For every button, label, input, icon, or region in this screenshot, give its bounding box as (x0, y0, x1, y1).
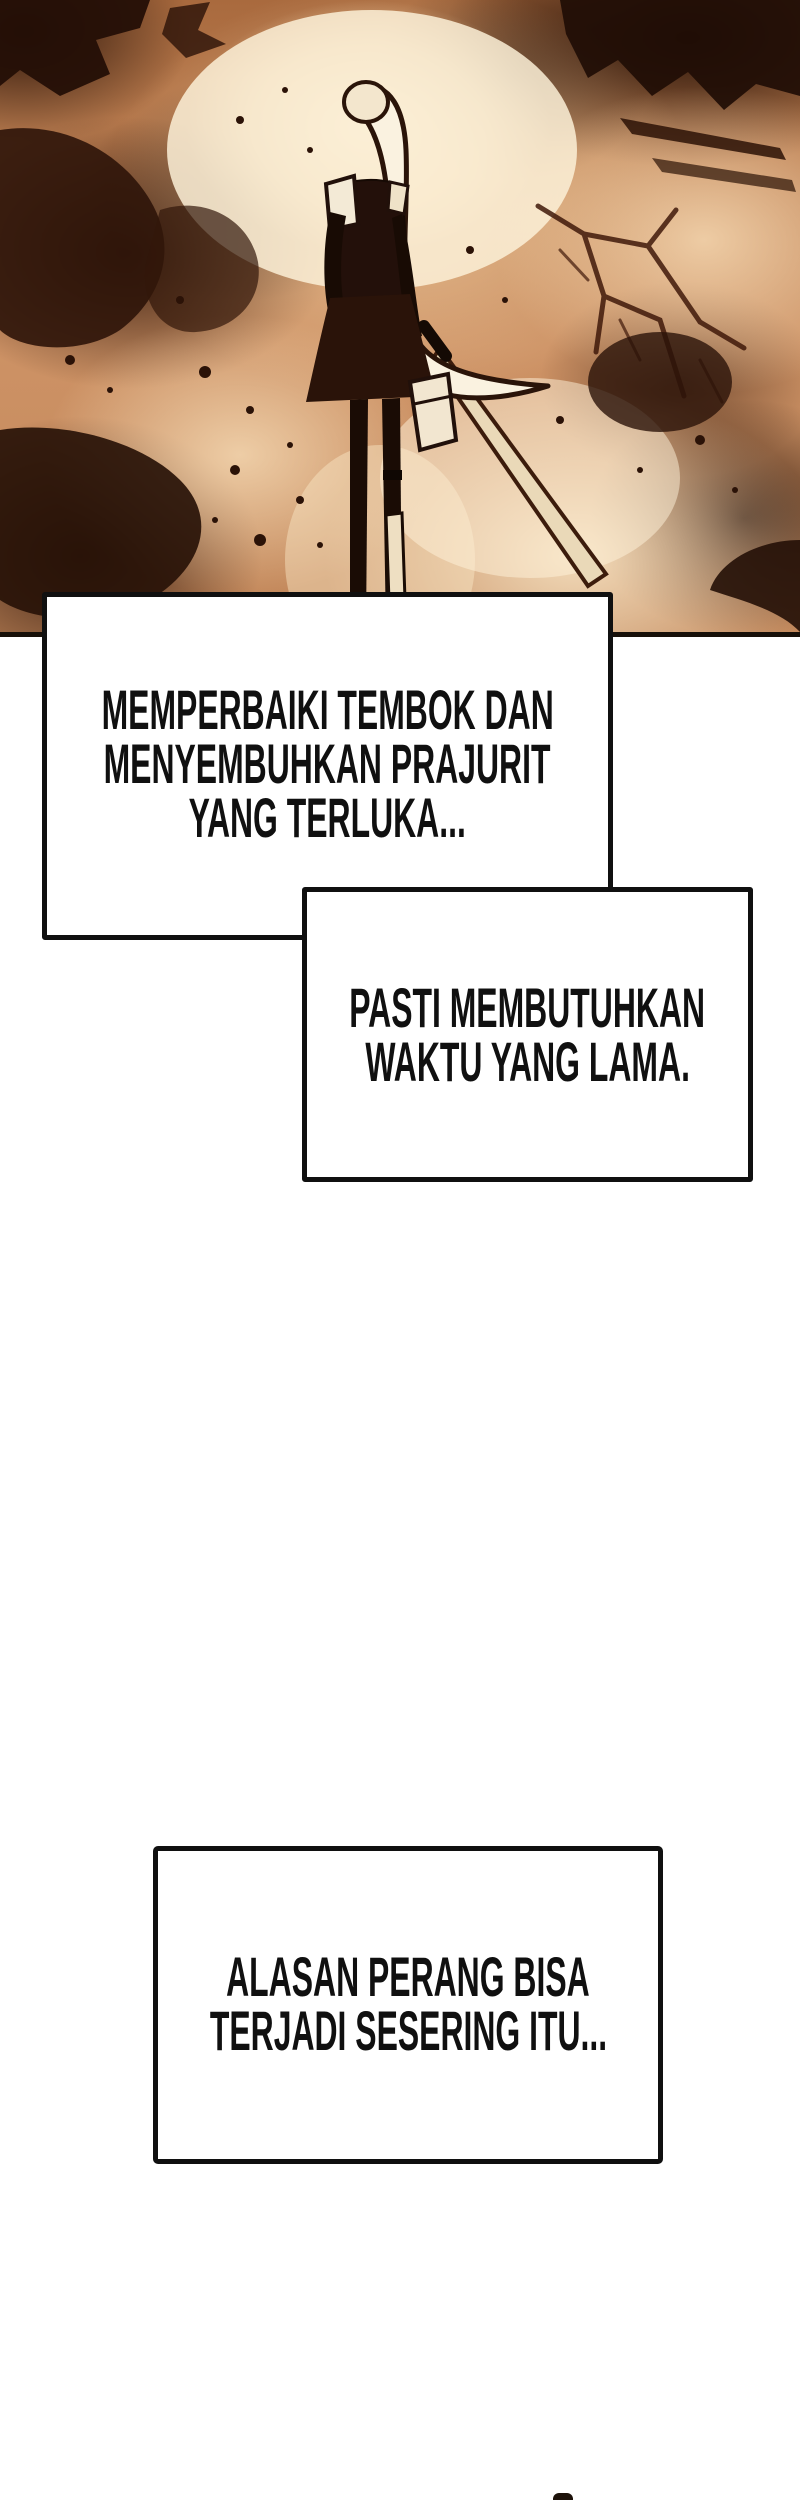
bubble-1-line-3: YANG TERLUKA... (189, 791, 466, 845)
bubble-1-line-1: MEMPERBAIKI TEMBOK DAN (101, 683, 553, 737)
comic-panel-artwork (0, 0, 800, 637)
character-illustration (0, 0, 800, 632)
bubble-2-line-2: WAKTU YANG LAMA. (365, 1035, 690, 1089)
bubble-1-line-2: MENYEMBUHKAN PRAJURIT (104, 737, 551, 791)
speech-bubble-3-text: ALASAN PERANG BISA TERJADI SESERING ITU.… (153, 1950, 663, 2058)
bubble-2-line-1: PASTI MEMBUTUHKAN (350, 981, 706, 1035)
speech-bubble-2-text: PASTI MEMBUTUHKAN WAKTU YANG LAMA. (302, 981, 753, 1089)
next-panel-peek (553, 2493, 573, 2500)
bubble-3-line-2: TERJADI SESERING ITU... (209, 2004, 606, 2058)
bubble-3-line-1: ALASAN PERANG BISA (226, 1950, 590, 2004)
bubble-overlap-patch (307, 892, 608, 935)
webtoon-page: MEMPERBAIKI TEMBOK DAN MENYEMBUHKAN PRAJ… (0, 0, 800, 2500)
speech-bubble-1-text: MEMPERBAIKI TEMBOK DAN MENYEMBUHKAN PRAJ… (42, 683, 613, 845)
